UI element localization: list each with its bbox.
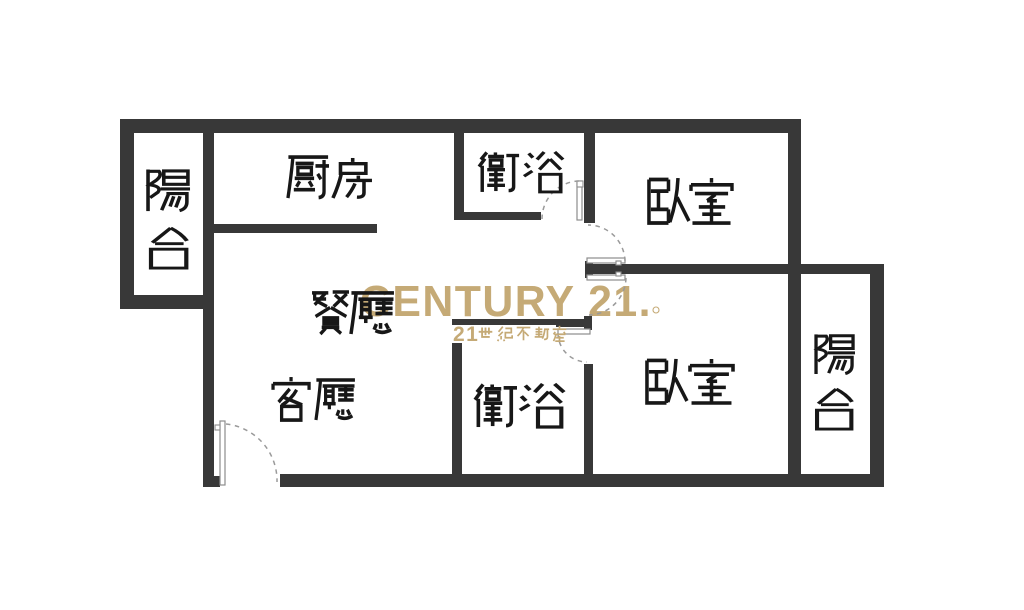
svg-text:21: 21 bbox=[453, 323, 479, 346]
svg-text:CENTURY 21.: CENTURY 21. bbox=[360, 277, 652, 326]
